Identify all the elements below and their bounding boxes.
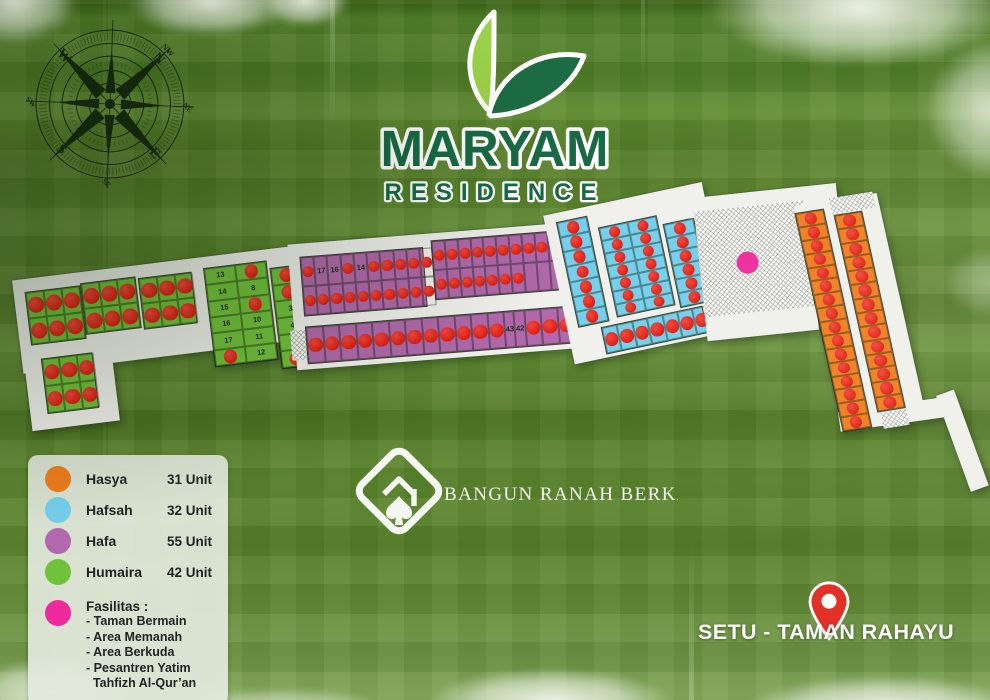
sold-dot	[474, 275, 486, 287]
lot-number: 16	[330, 265, 339, 273]
sold-dot	[448, 277, 460, 289]
developer-name: BANGUN RANAH BERKAH	[444, 484, 678, 505]
lot	[80, 380, 100, 409]
sold-dot	[572, 249, 587, 264]
sold-dot	[27, 296, 45, 314]
sold-dot	[848, 242, 863, 256]
sold-dot	[512, 272, 524, 284]
sold-dot	[357, 290, 369, 302]
siteplan-poster: 131481516101711123451716144342 N E S	[0, 0, 990, 700]
sold-dot	[368, 260, 380, 272]
sold-dot	[585, 309, 600, 324]
lot	[120, 302, 141, 329]
lot: 12	[245, 342, 278, 362]
sold-dot	[566, 220, 581, 235]
lot-block-G: 171614	[300, 248, 426, 315]
lot-number: 11	[255, 332, 264, 340]
compass-ne: NE	[181, 100, 194, 114]
sold-dot	[461, 276, 473, 288]
sold-dot	[873, 354, 888, 368]
legend-color-swatch	[45, 600, 71, 626]
sold-dot	[804, 212, 818, 225]
sold-dot	[852, 256, 867, 270]
sold-dot	[383, 288, 395, 300]
sold-dot	[822, 293, 836, 306]
brand-logo: MARYAM RESIDENCE	[368, 6, 622, 208]
sold-dot	[342, 262, 354, 274]
sold-dot	[840, 375, 854, 388]
facility-item: - Pesantren Yatim	[86, 661, 196, 677]
sold-dot	[78, 359, 95, 376]
sold-dot	[439, 327, 455, 343]
legend-units: 32 Unit	[167, 503, 212, 518]
legend-color-swatch	[45, 528, 71, 554]
sold-dot	[855, 270, 870, 284]
lot-block-A	[26, 286, 86, 344]
sold-dot	[819, 280, 833, 293]
sold-dot	[664, 318, 680, 334]
legend-name: Humaira	[86, 564, 142, 580]
sold-dot	[324, 336, 340, 352]
sold-dot	[569, 234, 584, 249]
legend-rows: Hasya31 UnitHafsah32 UnitHafa55 UnitHuma…	[28, 464, 228, 587]
lot-block-E: 13148151610171112	[204, 261, 277, 366]
legend-name: Hafa	[86, 533, 116, 549]
sold-dot	[318, 293, 330, 305]
sold-dot	[308, 337, 324, 353]
sold-dot	[370, 289, 382, 301]
sold-dot	[619, 328, 635, 344]
sold-dot	[30, 322, 48, 340]
sold-dot	[344, 291, 356, 303]
sold-dot	[357, 333, 373, 349]
sold-dot	[523, 242, 535, 254]
leaf-dark	[489, 55, 584, 116]
sold-dot	[81, 386, 98, 403]
sold-dot	[816, 266, 830, 279]
lot-number: 14	[356, 263, 365, 271]
sold-dot	[485, 245, 497, 257]
lot-number: 10	[253, 316, 262, 324]
sold-dot	[536, 241, 548, 253]
sold-dot	[140, 281, 158, 299]
sold-dot	[828, 320, 842, 333]
compass-rose: N E S W NE SE SW NW	[26, 20, 194, 188]
legend-item: Humaira42 Unit	[45, 557, 212, 587]
sold-dot	[581, 294, 596, 309]
facilities-list: - Taman Bermain- Area Memanah- Area Berk…	[86, 614, 196, 692]
sold-dot	[510, 243, 522, 255]
sold-dot	[161, 304, 179, 322]
sold-dot	[302, 266, 314, 278]
developer-leaf-icon	[386, 496, 412, 525]
sold-dot	[867, 326, 882, 340]
sold-dot	[45, 294, 63, 312]
developer-logo: BANGUN RANAH BERKAH	[348, 442, 678, 546]
sold-dot	[423, 285, 435, 297]
sold-dot	[121, 307, 139, 325]
lot	[76, 353, 96, 382]
sold-dot	[604, 331, 620, 347]
legend-name: Hafsah	[86, 502, 133, 518]
reserved-area-hatch	[880, 409, 909, 429]
legend-units: 55 Unit	[167, 534, 212, 549]
sold-dot	[86, 311, 104, 329]
sold-dot	[834, 348, 848, 361]
lot	[174, 272, 195, 299]
sold-dot	[849, 415, 863, 428]
lot	[841, 413, 872, 431]
sold-dot	[861, 298, 876, 312]
lot-number: 17	[317, 267, 326, 275]
sold-dot	[381, 259, 393, 271]
sold-dot	[883, 395, 898, 409]
legend-color-swatch	[45, 497, 71, 523]
sold-dot	[843, 388, 857, 401]
sold-dot	[394, 258, 406, 270]
sold-dot	[575, 264, 590, 279]
sold-dot	[876, 368, 891, 382]
sold-dot	[100, 284, 118, 302]
lot	[65, 312, 86, 340]
sold-dot	[879, 381, 894, 395]
sold-dot	[825, 307, 839, 320]
sold-dot	[864, 312, 879, 326]
legend-color-swatch	[45, 466, 71, 492]
legend-units: 42 Unit	[167, 565, 212, 580]
sold-dot	[624, 301, 637, 314]
sold-dot	[653, 295, 666, 308]
sold-dot	[500, 273, 512, 285]
road-surface	[936, 390, 989, 492]
legend-panel: Hasya31 UnitHafsah32 UnitHafa55 UnitHuma…	[28, 455, 228, 700]
sold-dot	[243, 264, 258, 279]
location-label: SETU - TAMAN RAHAYU	[688, 620, 964, 645]
sold-dot	[459, 247, 471, 259]
legend-item: Hafa55 Unit	[45, 526, 212, 556]
sold-dot	[423, 328, 439, 344]
lot-number: 12	[257, 348, 266, 356]
sold-dot	[374, 332, 390, 348]
lot-number: 42	[516, 325, 525, 333]
sold-dot	[247, 296, 262, 311]
lot	[214, 346, 247, 366]
sold-dot	[456, 325, 472, 341]
facility-item: - Area Berkuda	[86, 645, 196, 661]
sold-dot	[845, 228, 860, 242]
sold-dot	[397, 287, 409, 299]
facility-item: Tahfizh Al-Qur’an	[86, 676, 196, 692]
sold-dot	[341, 334, 357, 350]
logo-subtitle: RESIDENCE	[384, 179, 605, 206]
sold-dot	[837, 361, 851, 374]
sold-dot	[433, 249, 445, 261]
lot-number: 43	[505, 325, 514, 333]
sold-dot	[436, 278, 448, 290]
sold-dot	[489, 323, 505, 339]
lot	[117, 278, 138, 305]
sold-dot	[118, 282, 136, 300]
lot-number: 13	[216, 271, 225, 279]
lot-number: 8	[251, 284, 256, 292]
lot-block-D	[139, 273, 197, 329]
sold-dot	[83, 287, 101, 305]
sold-dot	[634, 325, 650, 341]
facilities-text: Fasilitas : - Taman Bermain- Area Memana…	[86, 599, 196, 692]
sold-dot	[679, 315, 695, 331]
lot-number: 16	[222, 320, 231, 328]
sold-dot	[61, 361, 78, 378]
sold-dot	[842, 214, 857, 228]
legend-color-swatch	[45, 559, 71, 585]
sold-dot	[472, 324, 488, 340]
sold-dot	[223, 349, 238, 364]
lot-block-C	[81, 278, 141, 334]
sold-dot	[143, 306, 161, 324]
lot-number: 17	[224, 336, 233, 344]
facilities-label: Fasilitas :	[86, 599, 196, 614]
legend-units: 31 Unit	[167, 472, 212, 487]
facility-item: - Area Memanah	[86, 630, 196, 646]
sold-dot	[472, 246, 484, 258]
legend-name: Hasya	[86, 471, 127, 487]
sold-dot	[331, 292, 343, 304]
lot	[61, 286, 82, 314]
sold-dot	[410, 286, 422, 298]
sold-dot	[870, 340, 885, 354]
legend-item: Hasya31 Unit	[45, 464, 212, 494]
sold-dot	[64, 388, 81, 405]
lot-block-H	[432, 231, 566, 299]
lot-number: 14	[218, 287, 227, 295]
sold-dot	[487, 274, 499, 286]
sold-dot	[408, 257, 420, 269]
sold-dot	[807, 225, 821, 238]
sold-dot	[810, 239, 824, 252]
sold-dot	[390, 330, 406, 346]
lot	[177, 297, 198, 324]
sold-dot	[542, 319, 558, 335]
facility-item: - Taman Bermain	[86, 614, 196, 630]
sold-dot	[158, 279, 176, 297]
sold-dot	[687, 290, 701, 304]
sold-dot	[421, 256, 433, 268]
sold-dot	[63, 291, 81, 309]
sold-dot	[48, 319, 66, 337]
sold-dot	[813, 253, 827, 266]
sold-dot	[406, 329, 422, 345]
sold-dot	[497, 244, 509, 256]
sold-dot	[47, 390, 64, 407]
lot-block-B	[42, 353, 98, 413]
sold-dot	[44, 363, 61, 380]
sold-dot	[578, 279, 593, 294]
sold-dot	[176, 277, 194, 295]
sold-dot	[858, 284, 873, 298]
legend-item: Hafsah32 Unit	[45, 495, 212, 525]
sold-dot	[846, 402, 860, 415]
logo-title: MARYAM	[381, 120, 610, 177]
legend-facilities: Fasilitas : - Taman Bermain- Area Memana…	[45, 599, 212, 692]
sold-dot	[831, 334, 845, 347]
leaf-light	[470, 12, 494, 109]
sold-dot	[649, 322, 665, 338]
sold-dot	[526, 320, 542, 336]
sold-dot	[304, 294, 316, 306]
sold-dot	[446, 248, 458, 260]
sold-dot	[66, 317, 84, 335]
sold-dot	[179, 302, 197, 320]
sold-dot	[103, 309, 121, 327]
lot-number: 15	[220, 303, 229, 311]
